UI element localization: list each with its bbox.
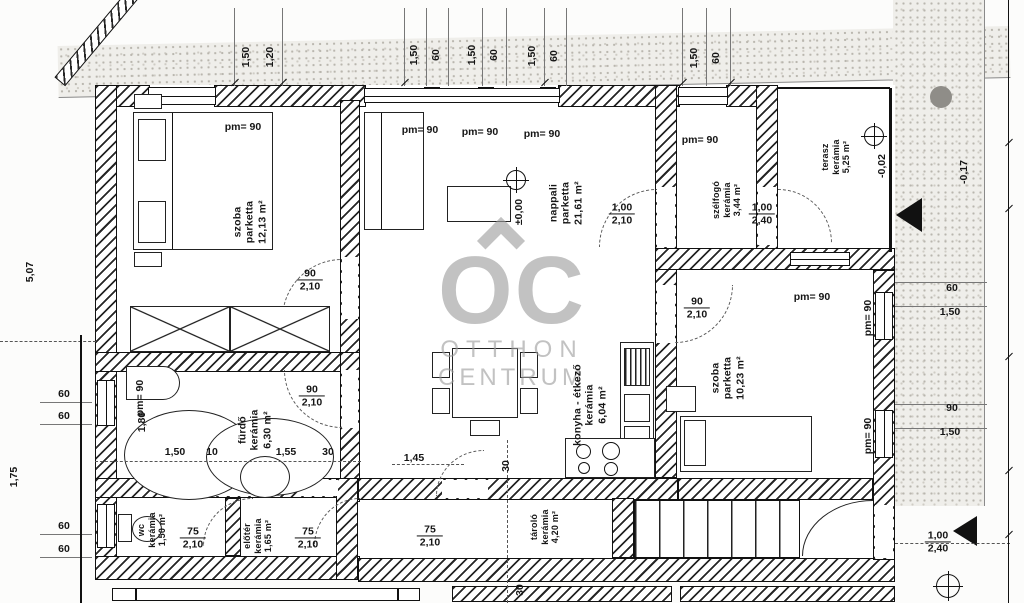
toilet-tank — [118, 514, 132, 542]
door-opening — [657, 285, 675, 343]
room-label-furdo: fürdő kerámia 6,30 m² — [236, 409, 273, 450]
door-opening — [342, 370, 358, 428]
entrance-marker — [896, 198, 922, 232]
axis-line — [0, 341, 96, 342]
staircase — [634, 500, 800, 558]
dimension-label: 1,50 — [940, 306, 960, 318]
door-opening — [875, 505, 893, 558]
nightstand — [666, 386, 696, 412]
dimension-label: 5,07 — [24, 262, 36, 282]
door-opening — [657, 187, 675, 247]
window — [875, 410, 893, 458]
dimension-label: 60 — [946, 282, 958, 294]
dimension-line — [40, 402, 92, 403]
dimension-line — [448, 8, 449, 86]
burner-icon — [578, 462, 590, 474]
door-size-nappali-szelfogo: 1,00 2,10 — [609, 201, 635, 226]
parapet-label: pm= 90 — [524, 128, 560, 140]
door-size-szoba2: 90 2,10 — [684, 295, 710, 320]
wall — [452, 586, 672, 602]
wall — [655, 248, 677, 478]
door-opening — [342, 257, 358, 319]
parapet-label: pm= 90 — [862, 418, 874, 454]
pillow — [684, 420, 706, 466]
dimension-line — [506, 8, 507, 86]
door-size-terasz-entry: 1,00 2,40 — [925, 529, 951, 554]
dimension-label: 1,50 — [165, 446, 185, 458]
drain-icon — [936, 574, 960, 598]
pillow — [138, 119, 166, 161]
dimension-label: 60 — [58, 520, 70, 532]
watermark-logo: OC — [432, 248, 592, 334]
kitchen-sink — [624, 394, 650, 422]
room-label-terasz: terasz kerámia 5,25 m² — [820, 139, 852, 174]
terrace-edge — [778, 87, 890, 89]
fence-post — [397, 589, 399, 600]
dimension-label: 60 — [488, 49, 500, 61]
wardrobe — [230, 306, 330, 352]
dimension-label: 1,55 — [276, 446, 296, 458]
room-label-szelfogo: szélfogó kerámia 3,44 m² — [711, 181, 743, 219]
dimension-chain — [1008, 0, 1009, 603]
floor-plan: OC OTTHON CENTRUM szoba parketta 12,13 m… — [0, 0, 1024, 603]
dimension-line — [392, 464, 464, 465]
single-bed — [680, 416, 812, 472]
parapet-label: pm= 90 — [862, 300, 874, 336]
dimension-label: 10 — [206, 446, 218, 458]
watermark: OC OTTHON CENTRUM — [432, 248, 592, 392]
dimension-label: 1,50 — [466, 45, 478, 65]
door-size-eloter: 75 2,10 — [295, 525, 321, 550]
watermark-word2: CENTRUM — [432, 364, 592, 392]
radiator — [624, 348, 650, 386]
dimension-label: 60 — [548, 50, 560, 62]
wall — [678, 478, 873, 500]
ceiling-lamp-icon — [506, 170, 526, 190]
dimension-label: 30 — [322, 446, 334, 458]
wall — [358, 558, 895, 582]
level-label-terasz: -0,02 — [876, 154, 888, 178]
door-size-szoba1: 90 2,10 — [297, 267, 323, 292]
bed-line — [172, 113, 173, 249]
dimension-label: 1,20 — [264, 47, 276, 67]
nightstand — [134, 252, 162, 267]
parapet-label: pm= 90 — [225, 121, 261, 133]
dimension-line — [404, 8, 405, 86]
burner-icon — [576, 444, 591, 459]
room-label-nappali: nappali parketta 21,61 m² — [547, 181, 584, 225]
dimension-label: 1,45 — [404, 452, 424, 464]
nightstand — [134, 94, 162, 109]
window — [678, 87, 728, 105]
sofa-line — [381, 113, 382, 229]
door-size-tarolo: 75 2,10 — [417, 523, 443, 548]
dimension-label: 1,50 — [526, 46, 538, 66]
dimension-label: 30 — [514, 584, 526, 596]
dimension-line — [40, 424, 92, 425]
parapet-label: pm= 90 — [134, 380, 146, 416]
room-label-eloter: előtér kerámia 1,65 m² — [242, 518, 274, 553]
washbasin — [240, 456, 290, 498]
dimension-label: 1,50 — [940, 426, 960, 438]
dimension-line — [234, 8, 235, 86]
room-label-szoba2: szoba parketta 10,23 m² — [709, 356, 746, 400]
parapet-label: pm= 90 — [462, 126, 498, 138]
fence-strip — [112, 588, 420, 601]
room-label-szoba1: szoba parketta 12,13 m² — [231, 200, 268, 244]
wall — [680, 586, 895, 602]
dimension-label: 60 — [430, 49, 442, 61]
parapet-label: pm= 90 — [794, 291, 830, 303]
window — [790, 252, 850, 266]
dimension-line — [40, 534, 92, 535]
fence-post — [135, 589, 137, 600]
pillow — [138, 201, 166, 243]
dimension-line — [706, 8, 707, 86]
level-label-main: ±0,00 — [513, 199, 525, 225]
window — [97, 504, 115, 548]
window — [364, 88, 560, 103]
dimension-label: 60 — [58, 388, 70, 400]
dimension-line — [730, 8, 731, 86]
dimension-line — [282, 8, 283, 86]
door-size-furdo: 90 2,10 — [299, 383, 325, 408]
wall — [612, 498, 634, 558]
window — [97, 380, 115, 426]
dimension-line — [566, 8, 567, 86]
dimension-line — [544, 8, 545, 86]
wall — [95, 556, 360, 580]
wall — [655, 248, 895, 270]
burner-icon — [604, 462, 618, 476]
room-label-konyha: konyha - étkező kerámia 6,04 m² — [571, 364, 608, 446]
axis-line — [895, 543, 1010, 544]
dimension-label: 60 — [58, 543, 70, 555]
dimension-label: 1,50 — [688, 48, 700, 68]
dimension-label: 60 — [58, 410, 70, 422]
boundary-line — [80, 335, 82, 603]
dimension-label: 1,50 — [408, 45, 420, 65]
room-label-tarolo: tároló kerámia 4,20 m² — [529, 509, 561, 544]
chair — [470, 420, 500, 436]
door-size-wc: 75 2,10 — [180, 525, 206, 550]
dimension-label: 1,75 — [8, 467, 20, 487]
door-size-szelfogo-terasz: 1,00 2,40 — [749, 201, 775, 226]
wall — [340, 100, 360, 368]
dimension-line — [426, 8, 427, 86]
dimension-line — [895, 282, 987, 283]
lamp-icon — [864, 126, 884, 146]
parapet-label: pm= 90 — [682, 134, 718, 146]
dimension-line — [40, 557, 92, 558]
dimension-line — [895, 404, 987, 405]
window — [875, 292, 893, 340]
terrace-edge — [889, 88, 892, 252]
room-label-wc: wc kerámia 1,50 m² — [136, 512, 168, 547]
dimension-label: 1,80 — [136, 412, 148, 432]
wardrobe — [130, 306, 230, 352]
dimension-label: 1,50 — [240, 47, 252, 67]
dimension-line — [682, 8, 683, 86]
dimension-label: 90 — [946, 402, 958, 414]
level-label-terrain: -0,17 — [958, 160, 970, 184]
wall — [358, 478, 678, 500]
dimension-label: 30 — [500, 460, 512, 472]
entrance-marker — [953, 516, 977, 546]
watermark-word1: OTTHON — [432, 336, 592, 364]
bush-icon — [930, 86, 952, 108]
dimension-line — [95, 461, 361, 462]
parapet-label: pm= 90 — [402, 124, 438, 136]
dimension-line — [482, 8, 483, 86]
dimension-label: 60 — [710, 52, 722, 64]
